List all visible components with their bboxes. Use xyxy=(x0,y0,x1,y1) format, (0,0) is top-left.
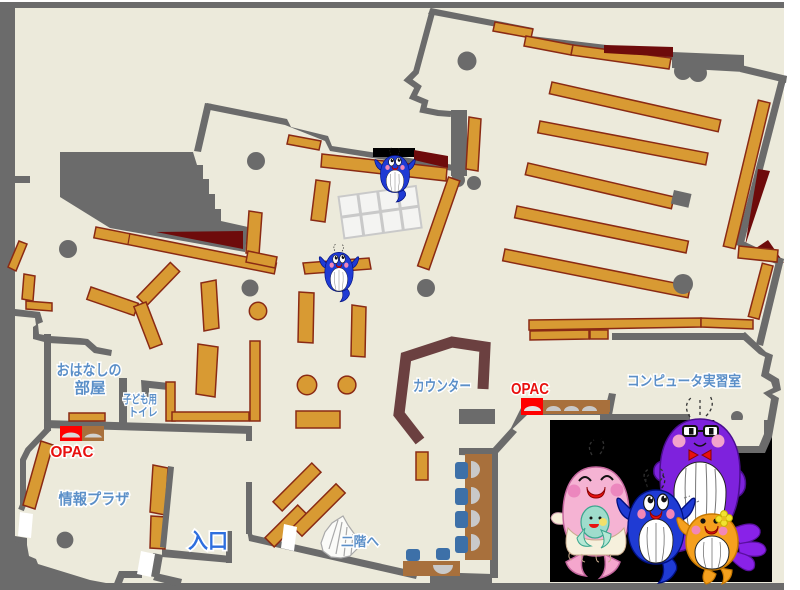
svg-text:カウンター: カウンター xyxy=(413,378,471,395)
svg-text:二階へ: 二階へ xyxy=(341,534,379,549)
svg-text:部屋: 部屋 xyxy=(75,379,106,397)
svg-text:OPAC: OPAC xyxy=(51,444,94,461)
svg-text:コンピュータ実習室: コンピュータ実習室 xyxy=(627,373,741,389)
svg-text:入口: 入口 xyxy=(188,530,228,553)
svg-text:情報プラザ: 情報プラザ xyxy=(59,490,130,508)
svg-text:おはなしの: おはなしの xyxy=(57,362,122,379)
svg-text:OPAC: OPAC xyxy=(511,381,549,398)
svg-text:子ども用: 子ども用 xyxy=(123,393,157,406)
svg-text:トイレ: トイレ xyxy=(129,406,158,419)
